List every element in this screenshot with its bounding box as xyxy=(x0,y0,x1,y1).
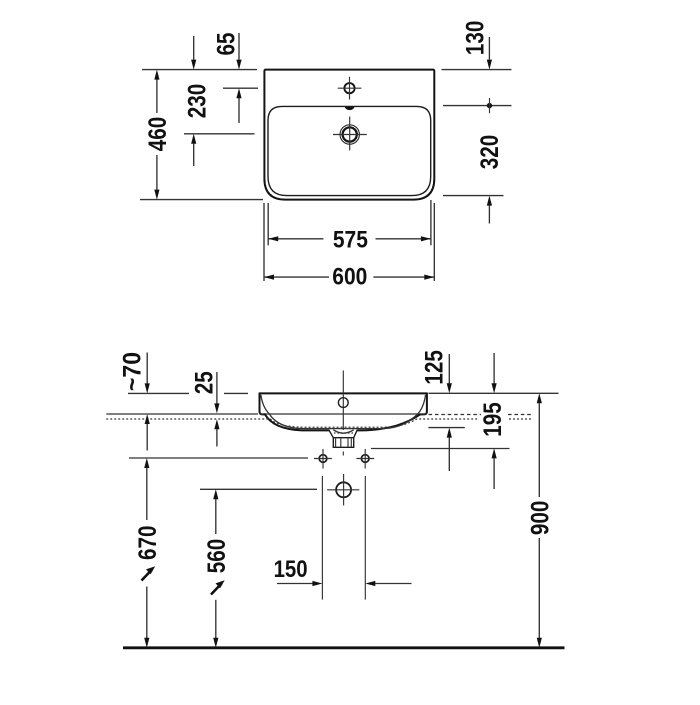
svg-text:320: 320 xyxy=(476,135,504,170)
svg-text:150: 150 xyxy=(274,556,308,583)
svg-text:670: 670 xyxy=(134,526,162,561)
svg-text:600: 600 xyxy=(332,263,367,290)
svg-text:125: 125 xyxy=(421,350,449,385)
svg-text:560: 560 xyxy=(203,539,231,574)
svg-text:575: 575 xyxy=(333,227,368,254)
svg-text:230: 230 xyxy=(183,84,211,119)
svg-text:65: 65 xyxy=(213,32,241,55)
svg-text:130: 130 xyxy=(461,21,489,56)
svg-text:25: 25 xyxy=(190,371,218,394)
svg-text:195: 195 xyxy=(479,402,507,437)
svg-text:~70: ~70 xyxy=(119,352,147,391)
svg-text:460: 460 xyxy=(144,117,172,152)
svg-text:900: 900 xyxy=(526,501,554,536)
